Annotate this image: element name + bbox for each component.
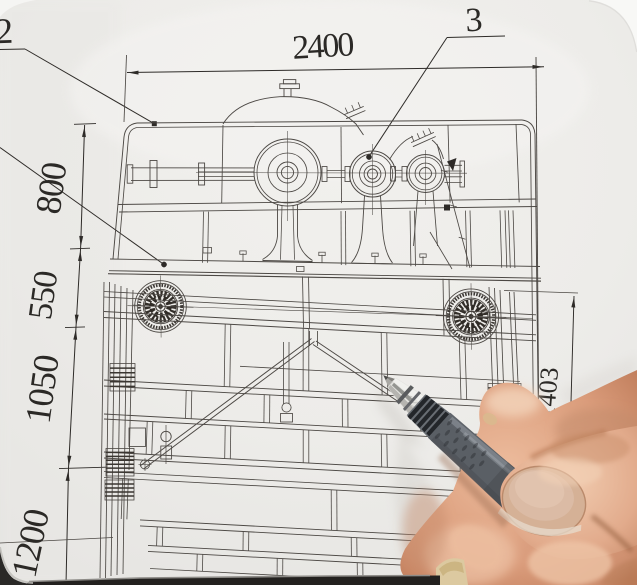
svg-text:2400: 2400 bbox=[291, 26, 354, 67]
svg-text:3: 3 bbox=[464, 2, 482, 40]
svg-text:800: 800 bbox=[28, 160, 75, 216]
svg-text:550: 550 bbox=[22, 269, 65, 322]
svg-text:2: 2 bbox=[0, 11, 13, 52]
